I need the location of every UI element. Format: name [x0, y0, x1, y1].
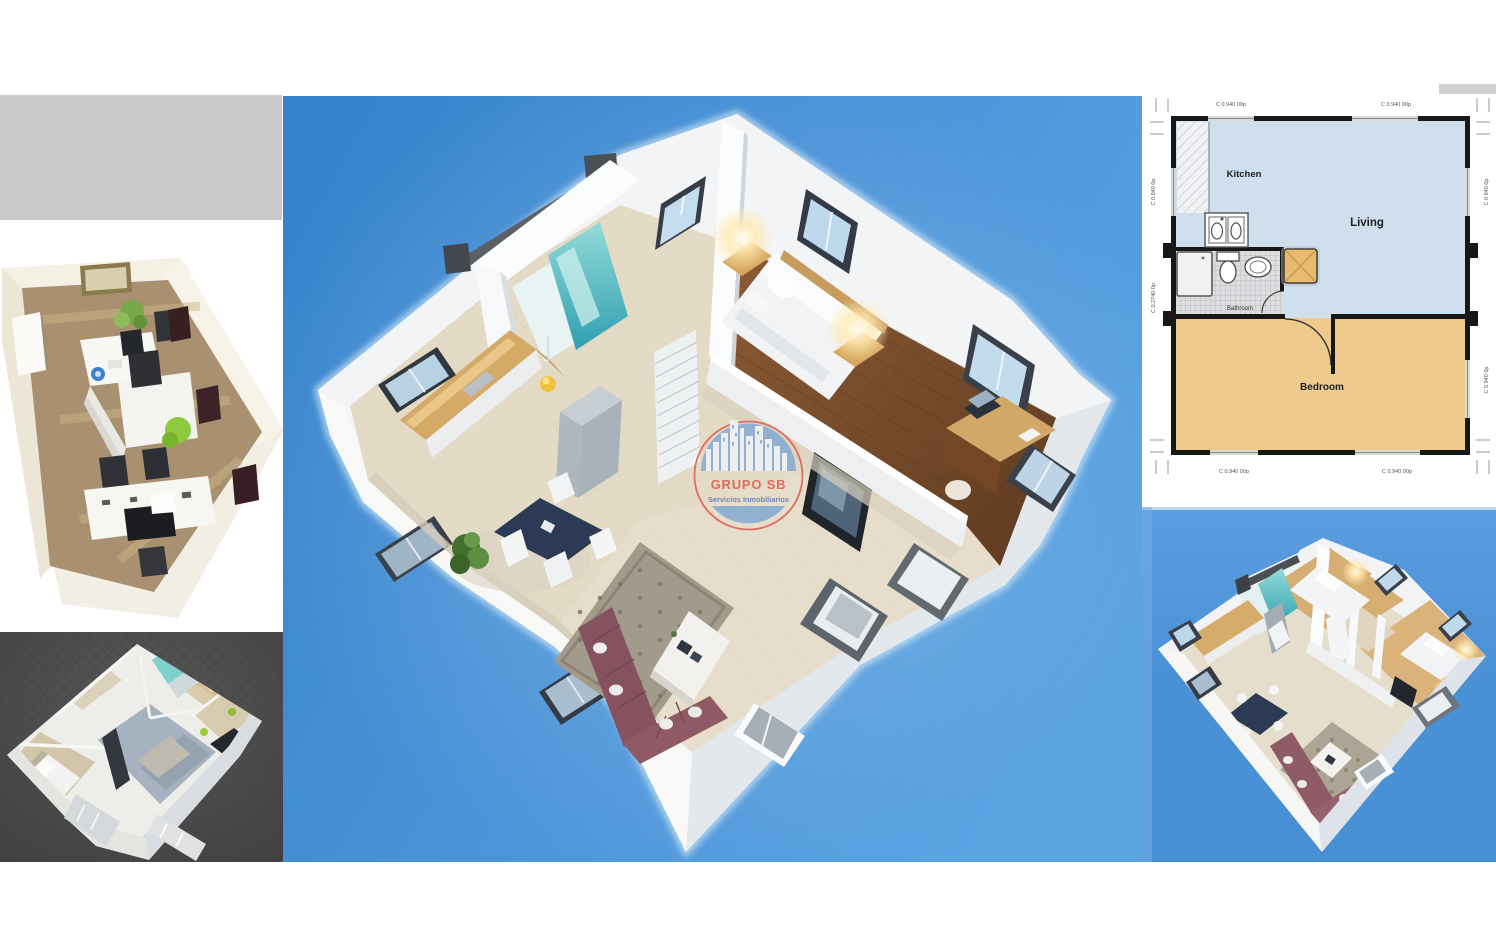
svg-text:Bathroom: Bathroom [1227, 306, 1253, 312]
svg-text:Servicios Inmobiliarios: Servicios Inmobiliarios [708, 495, 789, 504]
svg-text:C 0.940 00p: C 0.940 00p [1216, 102, 1246, 108]
svg-text:C 0.940 00p: C 0.940 00p [1382, 469, 1412, 475]
svg-text:C 0.940 0p: C 0.940 0p [1151, 179, 1157, 206]
svg-text:C 0.940 00p: C 0.940 00p [1219, 469, 1249, 475]
svg-text:Bedroom: Bedroom [1300, 382, 1344, 393]
svg-text:C 0.940 0p: C 0.940 0p [1484, 367, 1490, 394]
svg-text:Kitchen: Kitchen [1227, 169, 1262, 180]
svg-text:C 0.940 0p: C 0.940 0p [1484, 179, 1490, 206]
svg-text:Living: Living [1350, 217, 1384, 229]
svg-text:GRUPO SB: GRUPO SB [711, 477, 787, 492]
svg-text:C 0.940 00p: C 0.940 00p [1381, 102, 1411, 108]
svg-text:C 0.2740 0p: C 0.2740 0p [1151, 283, 1157, 313]
